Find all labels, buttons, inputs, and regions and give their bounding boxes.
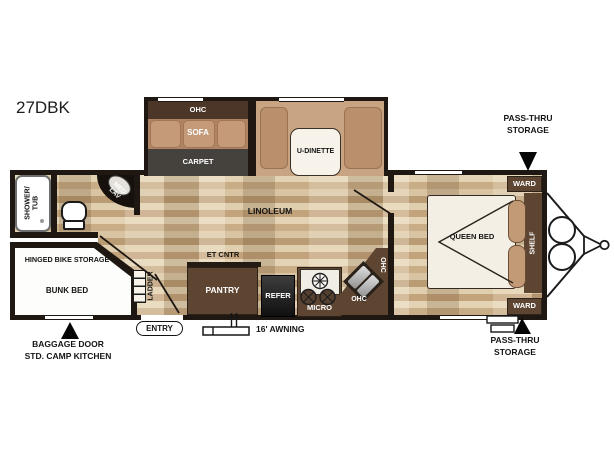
passthru-top-label-line2: STORAGE — [488, 126, 568, 136]
passthru-bottom-label-line1: PASS-THRU — [475, 336, 555, 346]
entry-label: ENTRY — [146, 324, 173, 333]
passthru-top-label-line1: PASS-THRU — [488, 114, 568, 124]
entry-label-badge: ENTRY — [136, 321, 183, 336]
floorplan-canvas: 27DBK OHC SOFA CARPET U-DINETTE SHOWER/ … — [0, 0, 614, 460]
bathroom-door-swing — [100, 236, 157, 280]
entry-door-swing — [155, 274, 179, 313]
passthru-top-arrow-icon — [519, 152, 537, 171]
bed-fold-lines — [439, 201, 513, 283]
propane-tank-icon — [549, 217, 575, 243]
baggage-door-label-line1: BAGGAGE DOOR — [18, 340, 118, 350]
hitch-ball-icon — [600, 241, 608, 249]
entry-step-icon — [491, 325, 514, 332]
entry-step-icon — [487, 316, 518, 323]
plan-linework — [0, 0, 614, 460]
bedroom-door-swing — [354, 190, 391, 214]
queen-bed-label: QUEEN BED — [430, 233, 514, 242]
linoleum-label: LINOLEUM — [230, 207, 310, 217]
baggage-door-label-line2: STD. CAMP KITCHEN — [8, 352, 128, 362]
baggage-door-arrow-icon — [61, 322, 79, 339]
awning-label: 16' AWNING — [256, 325, 326, 335]
hitch-coupler-icon — [584, 236, 602, 254]
passthru-bottom-label-line2: STORAGE — [475, 348, 555, 358]
propane-tank-icon — [549, 244, 575, 270]
awning-roll-icon — [203, 327, 249, 335]
